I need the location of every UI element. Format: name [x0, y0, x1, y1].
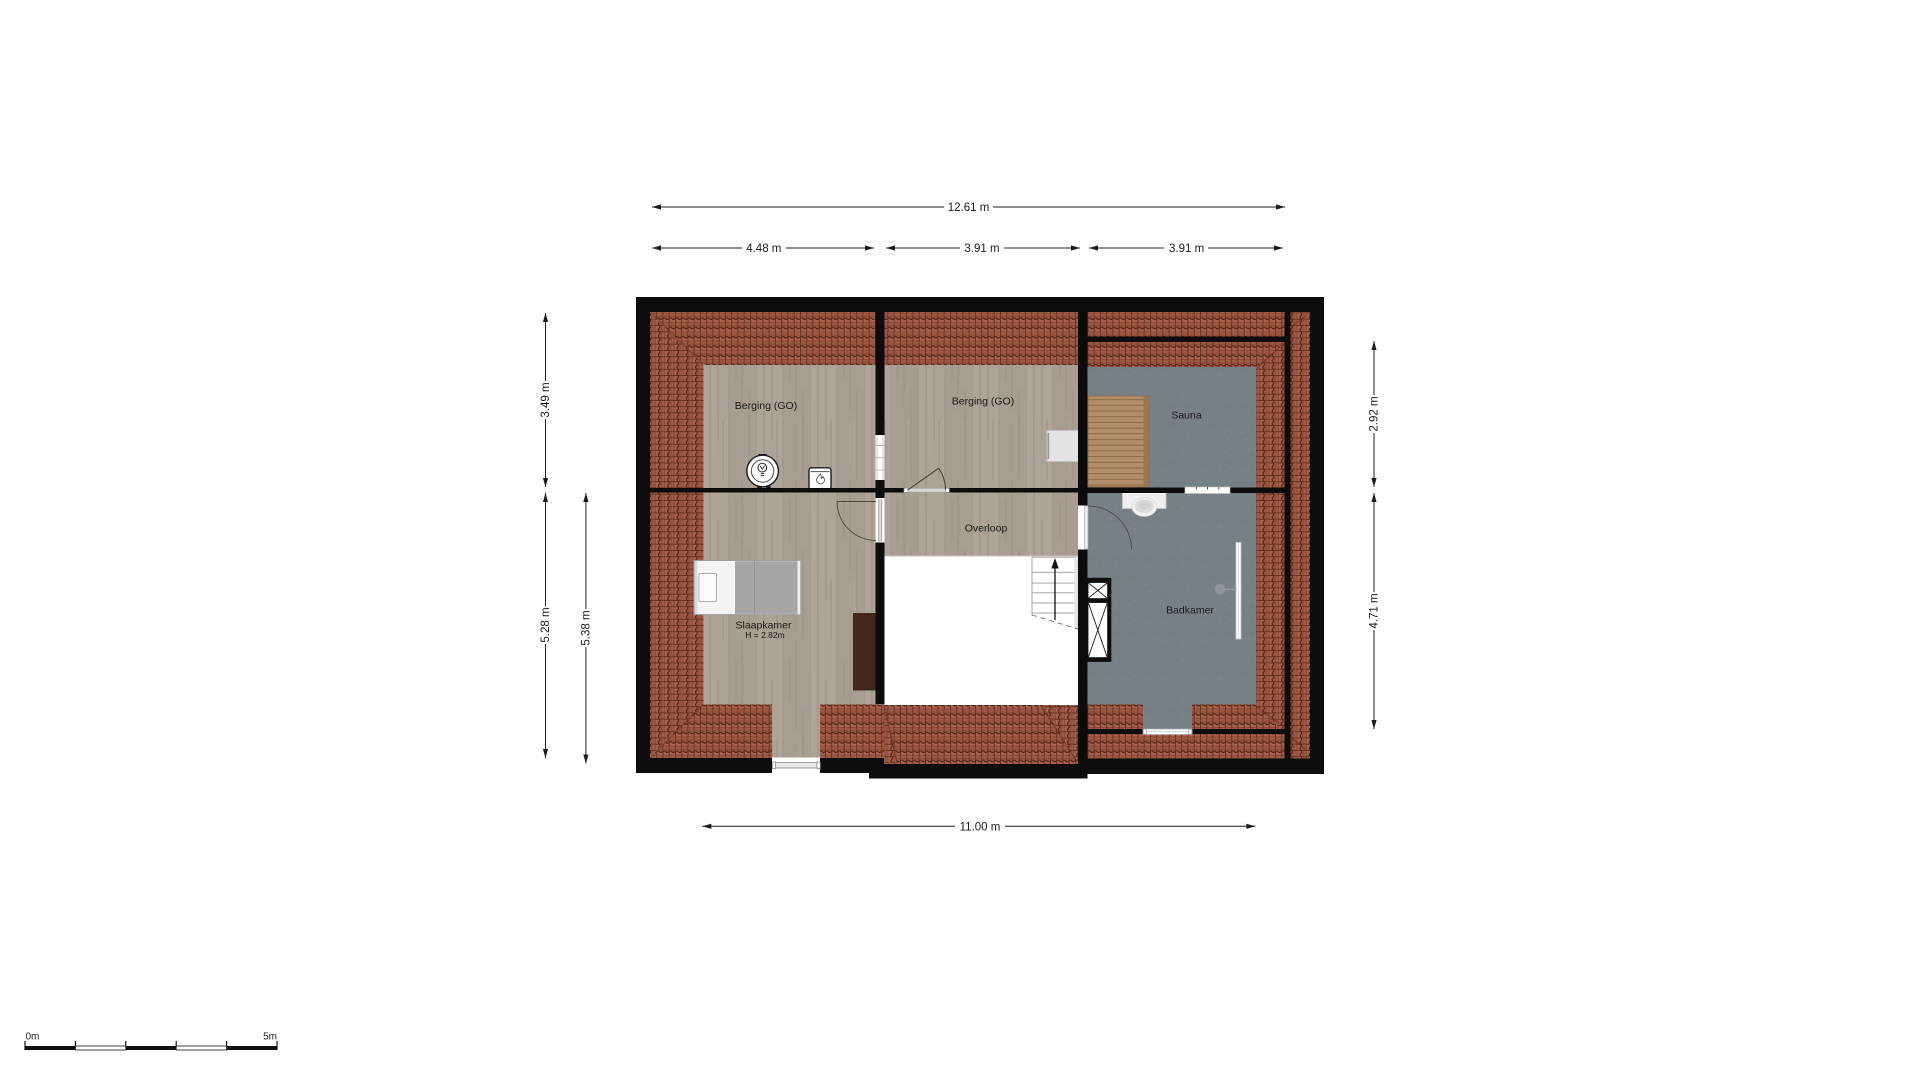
- svg-text:11.00 m: 11.00 m: [960, 821, 1001, 833]
- svg-text:0m: 0m: [26, 1032, 40, 1043]
- svg-text:Badkamer: Badkamer: [1166, 605, 1214, 617]
- svg-text:12.61 m: 12.61 m: [948, 202, 990, 214]
- svg-text:Berging (GO): Berging (GO): [952, 396, 1014, 408]
- svg-text:Overloop: Overloop: [965, 523, 1008, 535]
- svg-text:3.49 m: 3.49 m: [540, 382, 552, 417]
- svg-text:3.91 m: 3.91 m: [1169, 243, 1204, 255]
- svg-text:Berging (GO): Berging (GO): [735, 400, 797, 412]
- svg-text:2.92 m: 2.92 m: [1369, 396, 1381, 431]
- svg-text:3.91 m: 3.91 m: [964, 243, 999, 255]
- svg-text:4.71 m: 4.71 m: [1369, 593, 1381, 628]
- svg-text:4.48 m: 4.48 m: [746, 243, 781, 255]
- svg-text:5.28 m: 5.28 m: [540, 607, 552, 642]
- svg-text:5m: 5m: [263, 1032, 277, 1043]
- svg-text:H = 2.82m: H = 2.82m: [745, 630, 784, 640]
- svg-text:5.38 m: 5.38 m: [580, 610, 592, 645]
- svg-text:Sauna: Sauna: [1171, 410, 1202, 422]
